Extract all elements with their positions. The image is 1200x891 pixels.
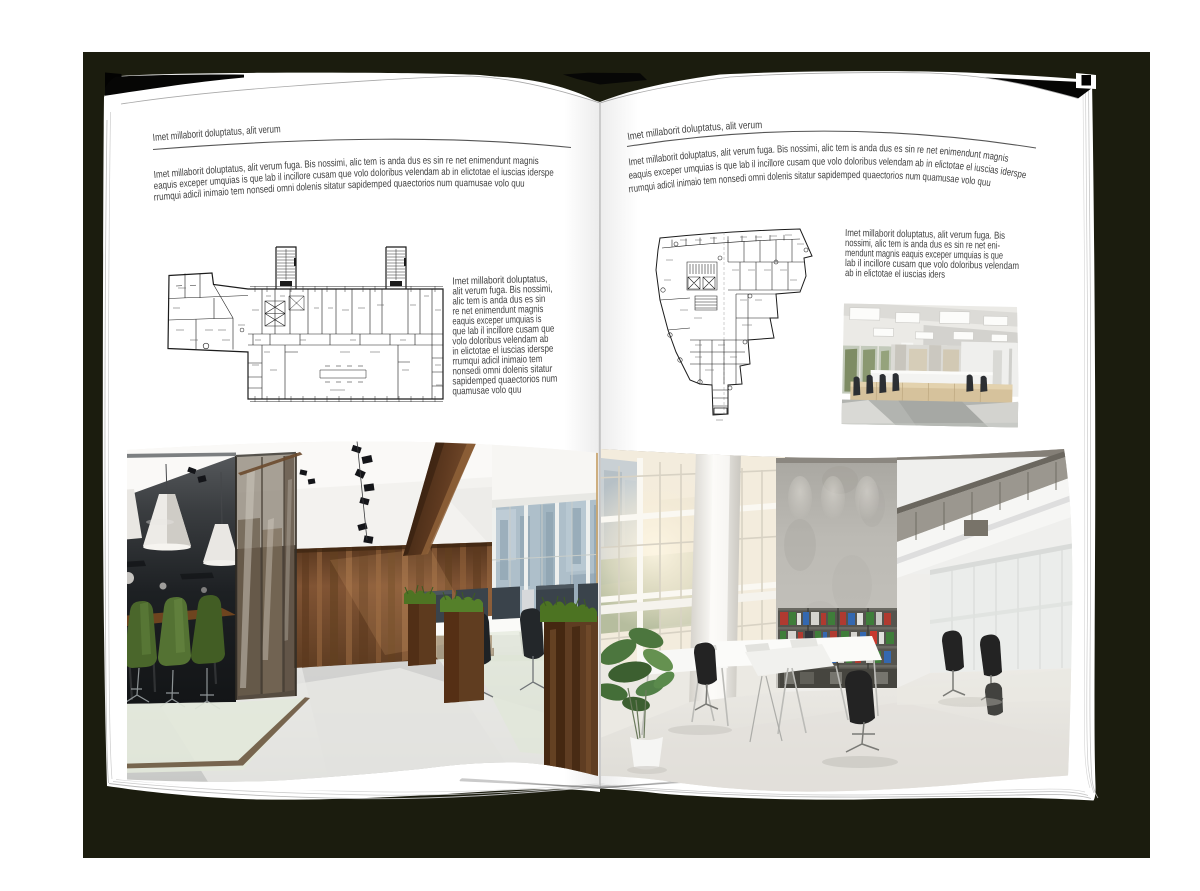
svg-text:quamusae volo quu: quamusae volo quu (452, 385, 521, 398)
svg-text:ab in elictotae el iuscias ide: ab in elictotae el iuscias iders (845, 268, 945, 281)
